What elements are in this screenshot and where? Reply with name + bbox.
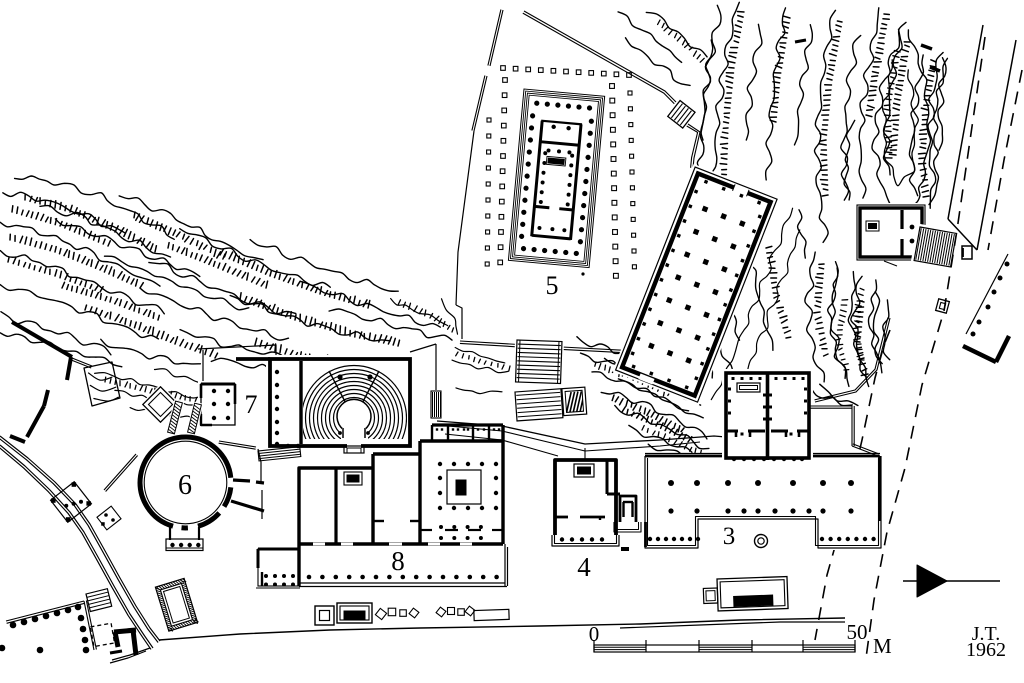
svg-text:M: M bbox=[873, 634, 892, 658]
svg-text:0: 0 bbox=[589, 622, 600, 646]
svg-text:5: 5 bbox=[546, 271, 559, 300]
svg-text:6: 6 bbox=[178, 470, 192, 501]
svg-text:8: 8 bbox=[391, 546, 405, 576]
svg-text:1962: 1962 bbox=[966, 639, 1006, 661]
svg-text:4: 4 bbox=[577, 552, 591, 582]
svg-text:3: 3 bbox=[723, 523, 736, 550]
svg-text:50: 50 bbox=[847, 620, 868, 644]
svg-text:7: 7 bbox=[245, 390, 258, 419]
